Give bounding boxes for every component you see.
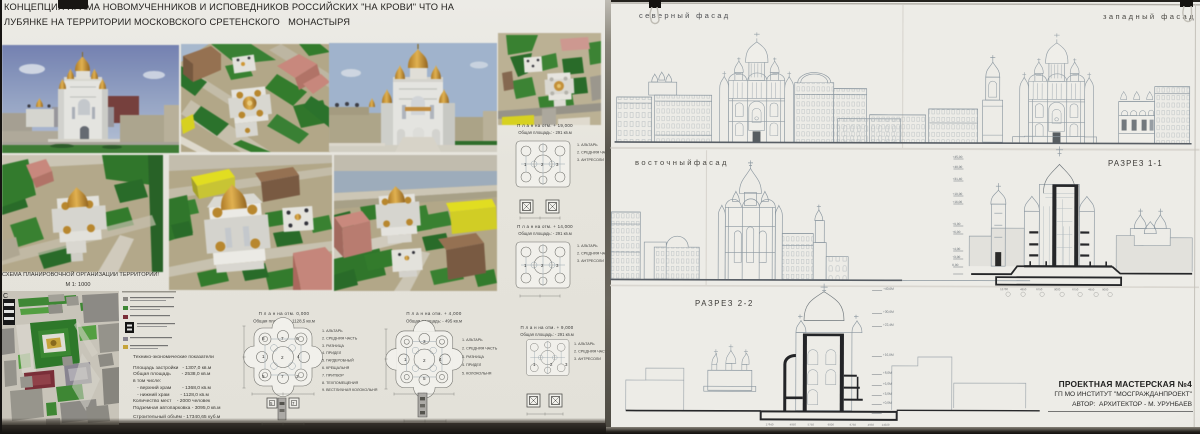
svg-text:+30,0М: +30,0М [883, 310, 894, 314]
svg-text:+31,40: +31,40 [952, 177, 962, 181]
svg-text:2: 2 [281, 355, 284, 360]
svg-text:9000: 9000 [1102, 287, 1109, 291]
svg-text:4. ПРИДЕЛ: 4. ПРИДЕЛ [322, 351, 342, 355]
svg-text:Общая площадь: - 291 кв.м: Общая площадь: - 291 кв.м [518, 231, 572, 236]
svg-text:5. КОЛОКОЛЬНЯ: 5. КОЛОКОЛЬНЯ [462, 372, 492, 376]
svg-text:Общая площадь: - 291 кв.м: Общая площадь: - 291 кв.м [518, 130, 572, 135]
svg-text:П л а н на отм. + 4,000: П л а н на отм. + 4,000 [406, 311, 461, 316]
svg-text:П л а н на отм. 0,000: П л а н на отм. 0,000 [259, 311, 310, 316]
svg-text:4: 4 [439, 357, 442, 362]
svg-text:П л а н на отм. + 14,000: П л а н на отм. + 14,000 [517, 224, 573, 229]
svg-text:+4,00: +4,00 [952, 247, 960, 251]
svg-text:7: 7 [281, 374, 284, 379]
svg-text:6750: 6750 [1036, 287, 1043, 291]
svg-text:+6,0М: +6,0М [883, 382, 892, 386]
svg-text:+16,0М: +16,0М [883, 353, 894, 357]
svg-text:+3,00: +3,00 [952, 255, 960, 259]
svg-text:+40,0М: +40,0М [883, 287, 894, 291]
svg-text:+6,00: +6,00 [952, 230, 960, 234]
svg-text:+19,00: +19,00 [952, 192, 962, 196]
svg-text:17640: 17640 [766, 422, 774, 426]
svg-text:12700: 12700 [1000, 287, 1008, 291]
svg-text:8. ТЕХПОМЕЩЕНИЯ: 8. ТЕХПОМЕЩЕНИЯ [322, 381, 359, 385]
svg-text:3. АНТРЕСОЛИ: 3. АНТРЕСОЛИ [577, 259, 604, 263]
svg-text:6: 6 [296, 336, 299, 341]
svg-text:+3,0М: +3,0М [883, 392, 892, 396]
svg-text:3. РИЗНИЦА: 3. РИЗНИЦА [462, 355, 484, 359]
svg-text:4950: 4950 [1020, 287, 1027, 291]
svg-text:П л а н на отм. + 9,000: П л а н на отм. + 9,000 [520, 325, 573, 330]
svg-text:4. ПРИДЕЛ: 4. ПРИДЕЛ [462, 363, 482, 367]
svg-text:9. ВЕСТЛИЧНАЯ КОЛОКОЛЬНЯ: 9. ВЕСТЛИЧНАЯ КОЛОКОЛЬНЯ [322, 388, 378, 392]
svg-text:8: 8 [262, 336, 265, 341]
svg-text:2: 2 [423, 358, 426, 363]
svg-text:+8,0М: +8,0М [883, 371, 892, 375]
svg-text:2. СРЕДНЯЯ ЧАСТЬ: 2. СРЕДНЯЯ ЧАСТЬ [574, 349, 606, 353]
svg-text:6750: 6750 [1072, 287, 1079, 291]
svg-text:3: 3 [296, 374, 299, 379]
svg-text:П л а н на отм. + 19,000: П л а н на отм. + 19,000 [517, 123, 573, 128]
svg-text:5750: 5750 [808, 423, 815, 427]
svg-text:+45,00: +45,00 [953, 155, 963, 159]
svg-text:1. АЛЬТАРЬ: 1. АЛЬТАРЬ [322, 329, 343, 333]
svg-text:0,00: 0,00 [952, 263, 958, 267]
svg-text:1. АЛЬТАРЬ: 1. АЛЬТАРЬ [577, 143, 598, 147]
svg-text:Общая площадь: - 291 кв.м: Общая площадь: - 291 кв.м [520, 332, 574, 337]
svg-text:4950: 4950 [790, 423, 797, 427]
svg-text:2. СРЕДНЯЯ ЧАСТЬ: 2. СРЕДНЯЯ ЧАСТЬ [577, 251, 606, 255]
svg-text:+9,00: +9,00 [952, 222, 960, 226]
svg-text:1: 1 [404, 357, 407, 362]
svg-text:7. ПРИТВОР: 7. ПРИТВОР [322, 373, 344, 377]
svg-text:5. ГАРДЕРОБНЫЙ: 5. ГАРДЕРОБНЫЙ [322, 359, 354, 363]
svg-text:+16,00: +16,00 [952, 200, 962, 204]
svg-text:2. СРЕДНЯЯ ЧАСТЬ: 2. СРЕДНЯЯ ЧАСТЬ [322, 336, 358, 340]
svg-text:2. СРЕДНЯЯ ЧАСТЬ: 2. СРЕДНЯЯ ЧАСТЬ [462, 346, 498, 350]
svg-text:3. АНТРЕСОЛИ: 3. АНТРЕСОЛИ [574, 357, 601, 361]
svg-text:5: 5 [423, 376, 426, 381]
svg-text:1. АЛЬТАРЬ: 1. АЛЬТАРЬ [577, 244, 598, 248]
svg-text:4: 4 [297, 354, 300, 359]
svg-text:+40,00: +40,00 [952, 165, 962, 169]
svg-text:+22,4М: +22,4М [883, 323, 894, 327]
svg-text:4950: 4950 [1088, 287, 1095, 291]
svg-text:9000: 9000 [1054, 287, 1061, 291]
svg-text:1. АЛЬТАРЬ: 1. АЛЬТАРЬ [462, 338, 483, 342]
svg-text:2. СРЕДНЯЯ ЧАСТЬ: 2. СРЕДНЯЯ ЧАСТЬ [577, 150, 606, 154]
svg-text:3: 3 [423, 339, 426, 344]
svg-text:3. АНТРЕСОЛИ: 3. АНТРЕСОЛИ [577, 158, 604, 162]
svg-text:6. КРЕЩАЛЬНЯ: 6. КРЕЩАЛЬНЯ [322, 366, 350, 370]
svg-text:5: 5 [262, 374, 265, 379]
svg-text:1: 1 [262, 354, 265, 359]
svg-text:Общая площадь: - 495 кв.м: Общая площадь: - 495 кв.м [406, 319, 462, 324]
svg-text:7: 7 [281, 336, 284, 341]
svg-text:1. АЛЬТАРЬ: 1. АЛЬТАРЬ [574, 342, 595, 346]
svg-text:3. РИЗНИЦА: 3. РИЗНИЦА [322, 344, 344, 348]
svg-text:+0,0М: +0,0М [883, 401, 892, 405]
